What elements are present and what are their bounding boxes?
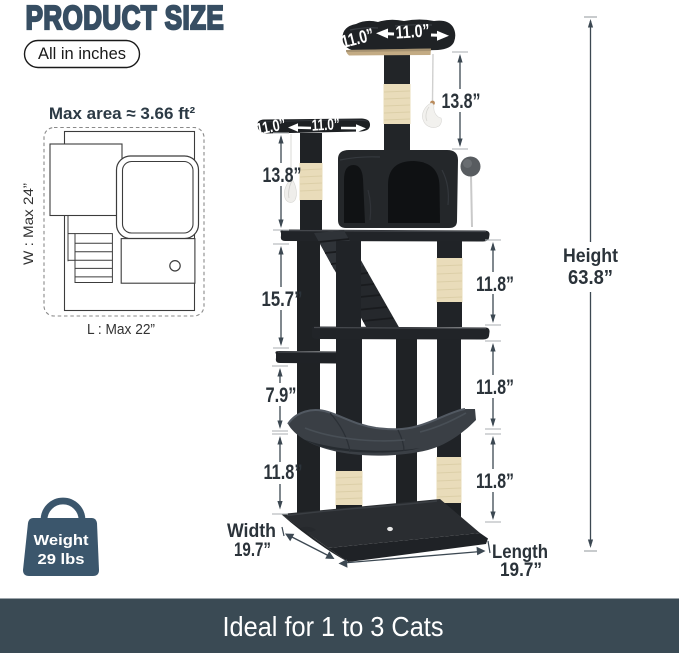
svg-text:29 lbs: 29 lbs — [38, 551, 85, 568]
svg-text:11.8”: 11.8” — [476, 470, 514, 493]
svg-text:11.8”: 11.8” — [264, 461, 303, 484]
svg-text:PRODUCT SIZE: PRODUCT SIZE — [26, 0, 225, 36]
svg-text:19.7”: 19.7” — [500, 560, 542, 581]
svg-text:15.7”: 15.7” — [262, 288, 303, 311]
svg-text:Width: Width — [227, 521, 276, 542]
svg-text:Max area ≈ 3.66 ft²: Max area ≈ 3.66 ft² — [49, 104, 196, 123]
svg-text:11.8”: 11.8” — [476, 273, 514, 296]
svg-text:W : Max 24”: W : Max 24” — [20, 183, 36, 265]
svg-text:11.0”: 11.0” — [311, 116, 340, 134]
svg-text:All in inches: All in inches — [38, 45, 126, 63]
svg-text:19.7”: 19.7” — [234, 540, 271, 561]
svg-text:Height: Height — [563, 245, 618, 267]
svg-text:L : Max 22”: L : Max 22” — [87, 321, 155, 338]
svg-text:11.0”: 11.0” — [395, 20, 430, 42]
svg-text:Ideal for 1 to 3 Cats: Ideal for 1 to 3 Cats — [223, 611, 444, 642]
svg-text:Weight: Weight — [34, 532, 89, 549]
svg-text:63.8”: 63.8” — [568, 267, 613, 289]
svg-text:7.9”: 7.9” — [266, 384, 297, 407]
svg-text:13.8”: 13.8” — [442, 90, 481, 113]
svg-text:13.8”: 13.8” — [263, 164, 302, 187]
svg-text:11.8”: 11.8” — [476, 376, 514, 399]
